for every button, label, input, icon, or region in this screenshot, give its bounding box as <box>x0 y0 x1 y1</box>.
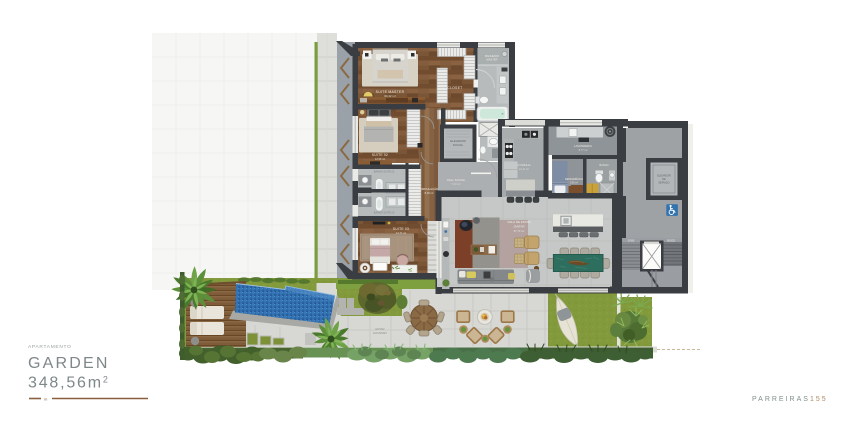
svg-text:COZINHA: COZINHA <box>517 163 530 167</box>
svg-text:LAVANDERIA: LAVANDERIA <box>574 144 592 148</box>
svg-text:8,15 m²: 8,15 m² <box>425 191 434 195</box>
svg-text:SOCIAL: SOCIAL <box>453 143 464 147</box>
svg-text:8,77 m²: 8,77 m² <box>579 148 588 152</box>
svg-text:7,40 m²: 7,40 m² <box>452 182 461 186</box>
svg-text:DESCE: DESCE <box>667 240 676 243</box>
svg-text:JANTAR: JANTAR <box>513 225 525 229</box>
svg-text:CLOSET: CLOSET <box>447 86 462 90</box>
svg-text:13,11 m²: 13,11 m² <box>519 167 529 171</box>
svg-text:PARREIRAS155: PARREIRAS155 <box>752 396 828 403</box>
svg-text:30,42 m²: 30,42 m² <box>384 94 396 98</box>
svg-text:SUITE 02: SUITE 02 <box>372 153 388 157</box>
svg-text:SALA DE ESTAR: SALA DE ESTAR <box>507 220 531 224</box>
svg-text:BANHO SUITE 03: BANHO SUITE 03 <box>374 212 395 215</box>
svg-text:5,96 m²: 5,96 m² <box>570 182 578 185</box>
svg-text:BANHEIRO: BANHEIRO <box>485 54 499 58</box>
svg-text:SOBE: SOBE <box>628 240 635 243</box>
svg-text:348,56m2: 348,56m2 <box>28 375 110 392</box>
svg-text:12,71 m²: 12,71 m² <box>396 231 406 235</box>
svg-text:SERVIÇO: SERVIÇO <box>658 182 669 185</box>
svg-text:BANHO SUITE 02: BANHO SUITE 02 <box>374 171 395 174</box>
svg-text:GOURMET: GOURMET <box>373 331 388 335</box>
svg-text:HALL SOCIAL: HALL SOCIAL <box>447 178 466 182</box>
svg-text:BANHO: BANHO <box>599 163 608 167</box>
svg-text:12,50 m²: 12,50 m² <box>375 157 385 161</box>
svg-text:SUITE 03: SUITE 03 <box>393 227 409 231</box>
svg-text:MASTER: MASTER <box>486 58 497 62</box>
svg-text:67,73 m²: 67,73 m² <box>514 229 525 233</box>
svg-text:CIRCULAÇÃO: CIRCULAÇÃO <box>420 186 439 191</box>
svg-text:APARTAMENTO: APARTAMENTO <box>28 344 72 350</box>
svg-text:GARDEN: GARDEN <box>28 355 110 372</box>
